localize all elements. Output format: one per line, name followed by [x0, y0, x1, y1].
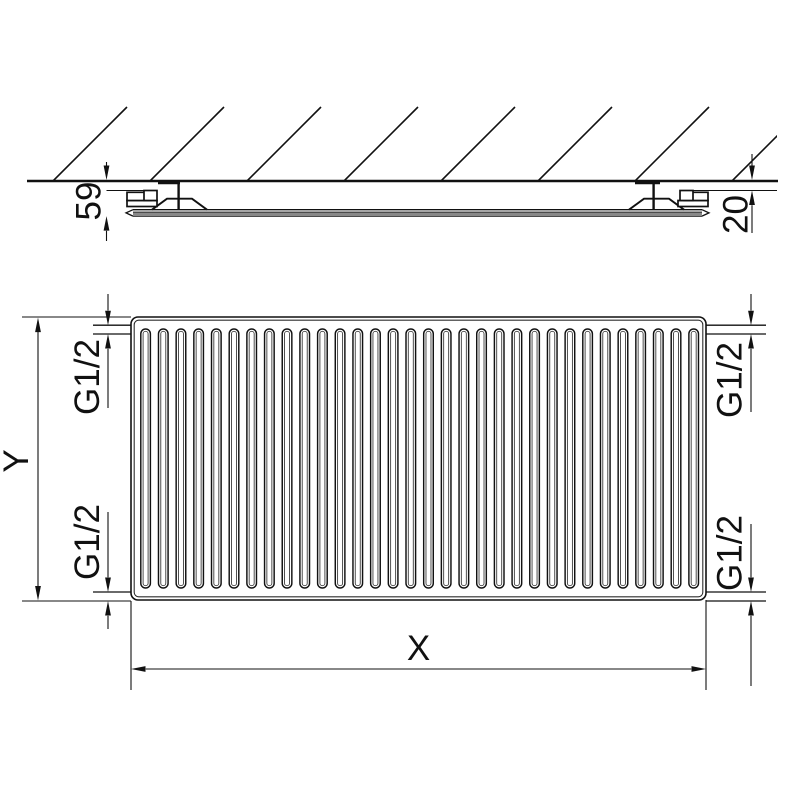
fin — [547, 329, 557, 588]
connection-label-bottom-left: G1/2 — [68, 504, 107, 580]
panel-left-tip — [126, 210, 133, 216]
technical-drawing: 59 20 — [0, 0, 800, 800]
dim-connection-bottom-left: G1/2 — [68, 504, 111, 629]
connection-label-bottom-right: G1/2 — [711, 515, 750, 591]
mounting-bracket-left — [152, 181, 207, 210]
fin — [459, 329, 469, 588]
radiator-panel-profile — [126, 210, 709, 216]
fin — [636, 329, 646, 588]
fin — [229, 329, 239, 588]
valve-fitting-right — [678, 191, 708, 207]
dim-connection-top-left: G1/2 — [68, 294, 111, 415]
wall-gap-label: 20 — [717, 195, 756, 234]
fin — [176, 329, 186, 588]
width-label: X — [407, 629, 430, 668]
fin — [282, 329, 292, 588]
fin — [194, 329, 204, 588]
valve-fitting-left — [107, 191, 158, 207]
fin — [247, 329, 257, 588]
bracket-clip-right — [629, 199, 684, 210]
dim-connection-top-right: G1/2 — [711, 294, 754, 418]
fin — [141, 329, 151, 588]
wall-hatch — [53, 107, 800, 181]
fin — [512, 329, 522, 588]
connection-label-top-right: G1/2 — [711, 342, 750, 418]
height-label: Y — [0, 449, 36, 472]
depth-label: 59 — [70, 182, 109, 221]
connection-stub-bottom-right — [706, 592, 766, 601]
fin — [477, 329, 487, 588]
dim-height: Y — [0, 317, 131, 601]
fin — [583, 329, 593, 588]
fin — [671, 329, 681, 588]
fin — [600, 329, 610, 588]
mounting-bracket-right — [629, 181, 684, 210]
fin — [265, 329, 275, 588]
fin — [388, 329, 398, 588]
fin — [654, 329, 664, 588]
connection-stub-top-left — [93, 325, 131, 334]
fin — [335, 329, 345, 588]
fin — [441, 329, 451, 588]
fin-pattern — [141, 329, 699, 588]
fin — [689, 329, 699, 588]
fin — [318, 329, 328, 588]
fin — [618, 329, 628, 588]
connection-label-top-left: G1/2 — [68, 339, 107, 415]
fin — [424, 329, 434, 588]
dim-depth: 59 — [70, 162, 110, 241]
fin — [565, 329, 575, 588]
side-view: 59 20 — [27, 107, 800, 241]
front-view: Y G1/2 G1/2 G1/2 — [0, 294, 766, 690]
connection-stub-top-right — [706, 325, 766, 334]
fin — [530, 329, 540, 588]
fin — [494, 329, 504, 588]
fin — [353, 329, 363, 588]
fin — [158, 329, 168, 588]
panel-right-tip — [702, 210, 709, 216]
dim-width: X — [131, 600, 706, 690]
fin — [371, 329, 381, 588]
fin — [300, 329, 310, 588]
fin — [406, 329, 416, 588]
fin — [212, 329, 222, 588]
